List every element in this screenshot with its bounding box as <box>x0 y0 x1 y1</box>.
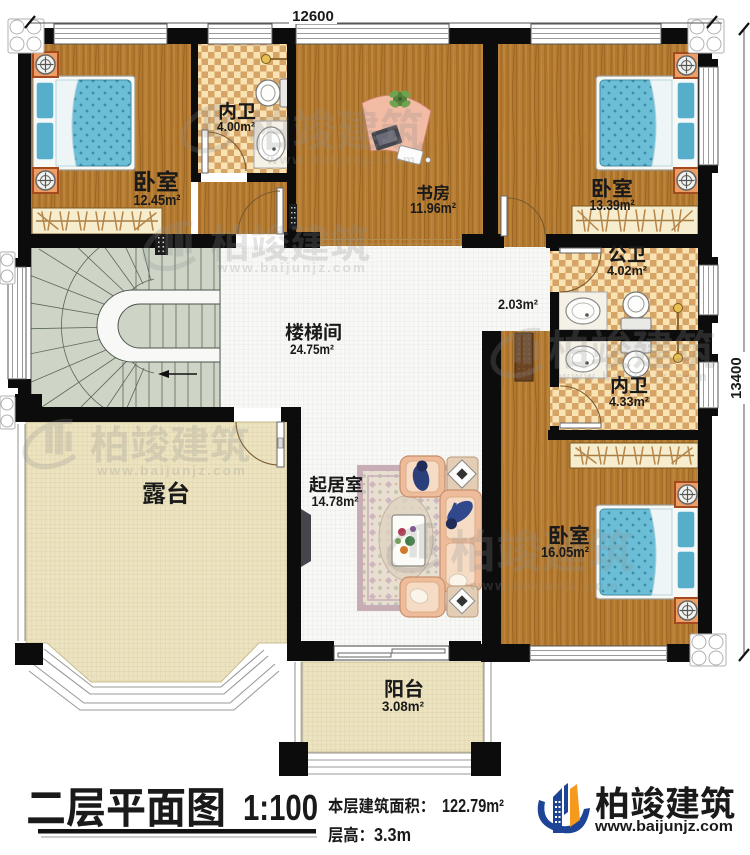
svg-text:www.baijunjz.com: www.baijunjz.com <box>216 260 367 275</box>
svg-text:www.baijunjz.com: www.baijunjz.com <box>594 819 733 835</box>
svg-text:12.45m²: 12.45m² <box>134 192 181 209</box>
svg-text:2.03m²: 2.03m² <box>498 296 538 312</box>
svg-text:3.3m: 3.3m <box>374 825 411 845</box>
svg-text:13.39m²: 13.39m² <box>590 197 635 214</box>
svg-text:12600: 12600 <box>292 8 334 25</box>
svg-text:14.78m²: 14.78m² <box>312 493 359 509</box>
svg-text:4.02m²: 4.02m² <box>607 263 648 278</box>
svg-text:13400: 13400 <box>728 357 745 399</box>
svg-text:www.baijunjz.com: www.baijunjz.com <box>558 369 709 384</box>
svg-text:11.96m²: 11.96m² <box>410 200 456 217</box>
svg-text:www.baijunjz.com: www.baijunjz.com <box>96 463 247 478</box>
svg-text:16.05m²: 16.05m² <box>541 544 589 561</box>
svg-text:24.75m²: 24.75m² <box>290 341 334 357</box>
svg-text:4.33m²: 4.33m² <box>609 394 650 409</box>
svg-text:122.79m²: 122.79m² <box>442 796 504 816</box>
svg-text:www.baijunjz.com: www.baijunjz.com <box>266 152 417 167</box>
svg-text:3.08m²: 3.08m² <box>382 698 424 714</box>
svg-text:www.baijunjz.com: www.baijunjz.com <box>469 578 620 593</box>
svg-text:4.00m²: 4.00m² <box>217 119 256 134</box>
svg-text:1:100: 1:100 <box>243 787 318 828</box>
